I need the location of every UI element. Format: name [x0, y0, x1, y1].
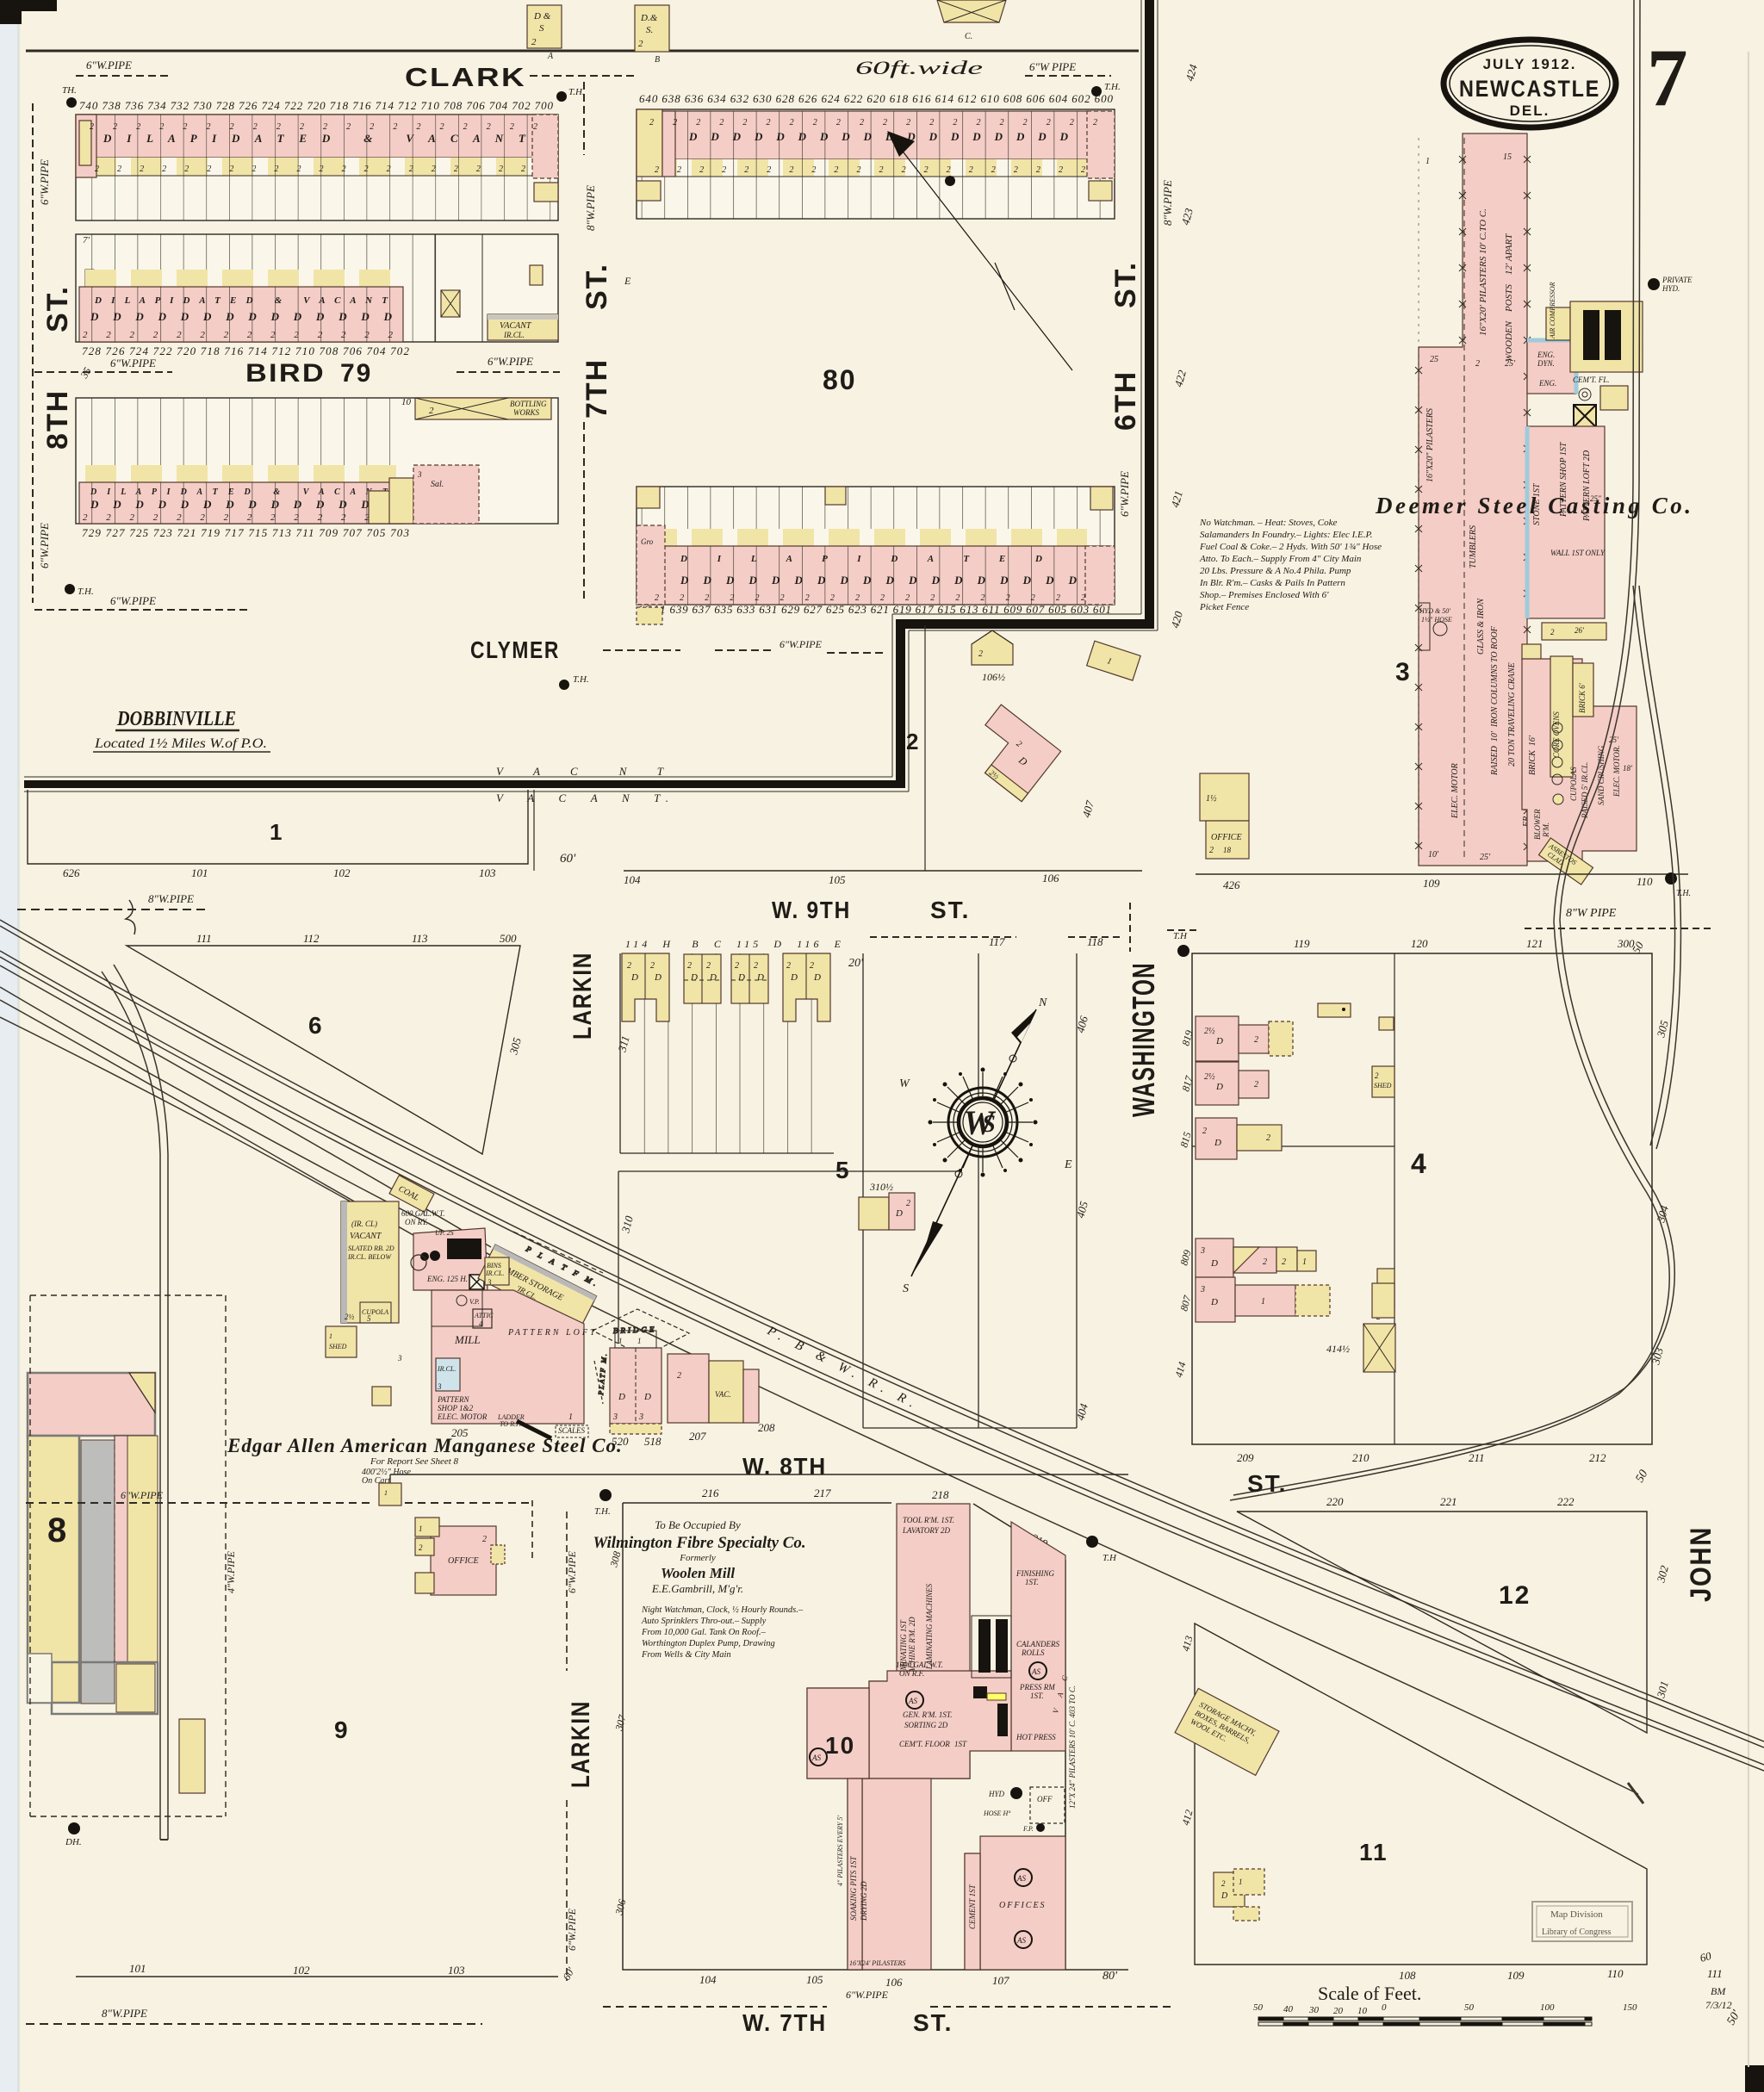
svg-text:ATTIC: ATTIC	[474, 1312, 494, 1319]
svg-text:S.: S.	[646, 25, 653, 35]
svg-text:IR.CL. BELOW: IR.CL. BELOW	[347, 1253, 392, 1261]
svg-text:2: 2	[677, 1371, 681, 1381]
svg-text:MILL: MILL	[454, 1333, 481, 1346]
svg-text:E: E	[624, 275, 631, 287]
svg-text:BINS: BINS	[487, 1262, 501, 1269]
svg-text:2: 2	[419, 1543, 423, 1552]
svg-text:25: 25	[1430, 355, 1438, 364]
svg-text:Night Watchman, Clock, ½ Hourl: Night Watchman, Clock, ½ Hourly Rounds.–	[641, 1605, 804, 1615]
svg-text:1ST.: 1ST.	[1025, 1578, 1039, 1586]
svg-text:VAC.: VAC.	[715, 1390, 731, 1399]
svg-text:VACANT: VACANT	[500, 321, 532, 331]
svg-text:IR.CL.: IR.CL.	[485, 1269, 504, 1277]
svg-text:D: D	[813, 972, 821, 983]
svg-text:106: 106	[1042, 872, 1059, 885]
svg-text:DYN.: DYN.	[1537, 359, 1555, 368]
svg-text:102: 102	[333, 866, 351, 879]
svg-text:6"W.PIPE: 6"W.PIPE	[86, 59, 132, 71]
svg-text:106: 106	[885, 1976, 903, 1989]
svg-text:6"W.PIPE: 6"W.PIPE	[121, 1489, 164, 1501]
svg-text:V.P.: V.P.	[469, 1298, 480, 1306]
svg-text:120: 120	[1411, 937, 1428, 950]
svg-text:3: 3	[1200, 1246, 1205, 1256]
svg-text:60': 60'	[560, 852, 576, 866]
svg-text:2½: 2½	[1204, 1072, 1215, 1082]
svg-text:ST.: ST.	[581, 263, 613, 310]
svg-text:VACANT: VACANT	[350, 1232, 382, 1241]
svg-text:6"W.PIPE: 6"W.PIPE	[566, 1550, 578, 1593]
svg-text:108: 108	[1399, 1969, 1416, 1982]
svg-text:Located 1½ Miles W.of P.O.: Located 1½ Miles W.of P.O.	[94, 736, 267, 751]
svg-text:30: 30	[1308, 2005, 1320, 2015]
svg-text:From 10,000 Gal. Tank On Roof.: From 10,000 Gal. Tank On Roof.–	[641, 1628, 767, 1637]
svg-text:ST.: ST.	[930, 897, 970, 923]
svg-text:ENG.: ENG.	[1537, 351, 1555, 359]
svg-text:121: 121	[1526, 937, 1543, 950]
svg-text:W. 8TH: W. 8TH	[742, 1453, 827, 1480]
svg-text:W. 9TH: W. 9TH	[772, 897, 851, 923]
svg-text:25': 25'	[1505, 359, 1516, 369]
svg-text:6"W.PIPE: 6"W.PIPE	[110, 357, 156, 369]
svg-text:Salamanders In Foundry.– Light: Salamanders In Foundry.– Lights: Elec I.…	[1200, 530, 1373, 540]
svg-text:8"W PIPE: 8"W PIPE	[1566, 907, 1617, 920]
svg-text:3: 3	[487, 1278, 492, 1287]
svg-text:2: 2	[1209, 846, 1214, 855]
svg-text:20 Lbs. Pressure & A No.4 Phil: 20 Lbs. Pressure & A No.4 Phila. Pump	[1200, 566, 1351, 576]
svg-text:2: 2	[1550, 628, 1555, 636]
svg-text:F.P.: F.P.	[1022, 1825, 1034, 1833]
svg-text:JULY 1912.: JULY 1912.	[1483, 56, 1577, 72]
svg-text:ELEC. MOTOR: ELEC. MOTOR	[1450, 763, 1460, 819]
svg-text:Worthington Duplex Pump, Drawi: Worthington Duplex Pump, Drawing	[642, 1639, 775, 1648]
svg-text:20: 20	[1333, 2006, 1344, 2016]
svg-text:104: 104	[699, 1973, 717, 1986]
svg-text:AS: AS	[1016, 1936, 1026, 1945]
svg-text:211: 211	[1469, 1451, 1485, 1464]
svg-text:OFF: OFF	[1037, 1795, 1053, 1803]
svg-text:D: D	[690, 972, 698, 983]
svg-text:6"W.PIPE: 6"W.PIPE	[38, 523, 51, 568]
svg-text:ENG.: ENG.	[1538, 379, 1556, 388]
svg-text:SHOP 1&2: SHOP 1&2	[438, 1404, 474, 1412]
svg-text:150: 150	[1623, 2002, 1637, 2013]
svg-text:T.H.: T.H.	[594, 1506, 611, 1517]
svg-text:626: 626	[63, 866, 80, 879]
svg-text:Edgar Allen American Manganese: Edgar Allen American Manganese Steel Co.	[227, 1435, 623, 1456]
svg-text:8"W.PIPE: 8"W.PIPE	[584, 185, 597, 231]
svg-text:1: 1	[419, 1524, 423, 1533]
svg-text:6TH: 6TH	[1109, 370, 1142, 431]
svg-text:10': 10'	[1428, 850, 1439, 860]
svg-text:101: 101	[191, 866, 208, 879]
svg-text:2: 2	[531, 37, 537, 47]
svg-text:210: 210	[1352, 1451, 1370, 1464]
svg-text:CEMENT 1ST: CEMENT 1ST	[968, 1884, 977, 1929]
svg-text:2: 2	[1221, 1879, 1226, 1888]
svg-text:2: 2	[706, 961, 711, 971]
svg-text:2: 2	[627, 961, 631, 971]
svg-text:105: 105	[829, 873, 846, 886]
svg-text:Scale of Feet.: Scale of Feet.	[1318, 1983, 1421, 2004]
svg-text:208: 208	[758, 1421, 775, 1434]
svg-text:103: 103	[448, 1964, 465, 1977]
svg-text:CLYMER: CLYMER	[470, 636, 560, 663]
svg-text:218: 218	[932, 1488, 949, 1501]
svg-text:AS: AS	[1016, 1874, 1026, 1883]
svg-text:ST.: ST.	[41, 285, 74, 332]
svg-text:OFFICE: OFFICE	[1211, 833, 1242, 842]
svg-text:2: 2	[1266, 1133, 1270, 1143]
svg-text:15: 15	[1503, 152, 1512, 162]
svg-text:AIR COMPRESSOR: AIR COMPRESSOR	[1549, 282, 1556, 339]
svg-text:ENG. 125 H.: ENG. 125 H.	[426, 1275, 468, 1283]
svg-text:2: 2	[1475, 359, 1480, 369]
svg-text:D: D	[630, 972, 638, 983]
svg-text:2: 2	[786, 961, 791, 971]
svg-text:728 726 724 722 720 718 716 71: 728 726 724 722 720 718 716 714 712 710 …	[82, 345, 410, 357]
svg-text:BRICK 16': BRICK 16'	[1528, 735, 1537, 775]
svg-text:6"W.PIPE: 6"W.PIPE	[780, 638, 823, 650]
svg-text:HOSE H°: HOSE H°	[983, 1810, 1011, 1817]
svg-text:CEM'T. FLOOR: CEM'T. FLOOR	[899, 1740, 950, 1748]
svg-text:DH.: DH.	[65, 1837, 82, 1847]
svg-text:Wilmington Fibre Specialty Co.: Wilmington Fibre Specialty Co.	[593, 1534, 805, 1552]
svg-text:2: 2	[650, 961, 655, 971]
svg-text:BIRD: BIRD	[245, 359, 326, 388]
svg-text:Woolen Mill: Woolen Mill	[661, 1565, 735, 1581]
svg-text:Sal.: Sal.	[431, 480, 444, 489]
svg-text:WOODEN POSTS 12' APART: WOODEN POSTS 12' APART	[1504, 233, 1514, 362]
svg-text:1½" HOSE: 1½" HOSE	[1421, 616, 1452, 624]
svg-text:109: 109	[1507, 1969, 1525, 1982]
svg-text:TH.: TH.	[62, 85, 77, 96]
svg-text:103: 103	[479, 866, 496, 879]
svg-text:222: 222	[1557, 1495, 1575, 1508]
svg-text:111: 111	[196, 932, 212, 945]
svg-text:D: D	[1214, 1138, 1221, 1148]
svg-text:16'X24' PILASTERS: 16'X24' PILASTERS	[849, 1959, 905, 1967]
svg-text:2: 2	[735, 961, 739, 971]
svg-text:414½: 414½	[1326, 1343, 1350, 1355]
svg-text:1GA1 639 637 635 633 631 629 6: 1GA1 639 637 635 633 631 629 627 625 623…	[637, 603, 1111, 616]
svg-text:Formerly: Formerly	[679, 1553, 716, 1563]
svg-text:1½: 1½	[1206, 794, 1217, 804]
svg-text:520: 520	[612, 1435, 629, 1448]
svg-text:PRIVATE: PRIVATE	[1662, 276, 1693, 284]
svg-text:1: 1	[1302, 1257, 1307, 1267]
svg-text:100: 100	[1540, 2002, 1555, 2013]
svg-text:D: D	[618, 1392, 625, 1402]
svg-text:T.H: T.H	[1102, 1553, 1117, 1563]
svg-text:11: 11	[1359, 1839, 1388, 1865]
svg-text:LARKIN: LARKIN	[568, 952, 597, 1040]
svg-text:2: 2	[810, 961, 814, 971]
svg-text:1: 1	[1261, 1297, 1265, 1307]
svg-text:CEM'T. FL.: CEM'T. FL.	[1573, 376, 1610, 384]
svg-text:T.H.: T.H.	[78, 587, 94, 597]
svg-text:WASHINGTON: WASHINGTON	[1126, 962, 1161, 1117]
svg-text:6"W.PIPE: 6"W.PIPE	[566, 1908, 578, 1951]
svg-text:16"X20" PILASTERS: 16"X20" PILASTERS	[1425, 408, 1435, 482]
svg-text:9: 9	[334, 1716, 350, 1743]
svg-text:310½: 310½	[869, 1181, 893, 1193]
svg-text:CUPOLA: CUPOLA	[362, 1308, 388, 1316]
svg-text:2: 2	[1282, 1257, 1286, 1267]
svg-text:CALANDERS: CALANDERS	[1016, 1640, 1060, 1648]
svg-text:PATTERN LOFT: PATTERN LOFT	[507, 1328, 598, 1338]
svg-text:5: 5	[367, 1314, 371, 1323]
svg-text:1ST.: 1ST.	[1030, 1692, 1044, 1700]
svg-text:6"W.PIPE: 6"W.PIPE	[1118, 471, 1131, 517]
svg-text:6: 6	[308, 1012, 324, 1039]
svg-text:20': 20'	[848, 957, 864, 970]
svg-text:Library of Congress: Library of Congress	[1542, 1927, 1612, 1937]
svg-text:DEL.: DEL.	[1510, 102, 1550, 119]
svg-text:S: S	[539, 23, 544, 34]
svg-text:110: 110	[1607, 1967, 1624, 1980]
svg-text:GEN. R'M. 1ST.: GEN. R'M. 1ST.	[903, 1710, 953, 1719]
svg-text:4: 4	[1411, 1148, 1428, 1179]
svg-text:212: 212	[1589, 1451, 1606, 1464]
svg-text:1: 1	[329, 1332, 332, 1340]
svg-text:111: 111	[1707, 1967, 1723, 1980]
svg-text:0: 0	[1382, 2002, 1387, 2013]
svg-text:2: 2	[1375, 1071, 1379, 1080]
svg-text:ELEC. MOTOR: ELEC. MOTOR	[437, 1412, 488, 1421]
svg-text:AS: AS	[908, 1697, 917, 1705]
svg-text:2: 2	[687, 961, 692, 971]
svg-text:IR.CL.: IR.CL.	[503, 331, 525, 339]
svg-text:1000 GAL W.T.: 1000 GAL W.T.	[896, 1661, 943, 1669]
svg-text:109: 109	[1423, 877, 1440, 890]
svg-text:8"W.PIPE: 8"W.PIPE	[1161, 180, 1174, 226]
svg-text:S: S	[982, 1111, 996, 1138]
svg-text:W. 7TH: W. 7TH	[742, 2009, 827, 2036]
svg-text:SLATED RB. 2D: SLATED RB. 2D	[348, 1245, 394, 1252]
svg-text:W: W	[899, 1077, 910, 1090]
svg-text:E.E.Gambrill, M'g'r.: E.E.Gambrill, M'g'r.	[651, 1582, 743, 1595]
svg-text:WALL 1ST ONLY: WALL 1ST ONLY	[1550, 549, 1606, 557]
svg-text:E: E	[1064, 1158, 1072, 1171]
svg-text:HYD: HYD	[988, 1790, 1005, 1798]
svg-text:2½: 2½	[345, 1313, 355, 1321]
svg-text:6"W.PIPE: 6"W.PIPE	[488, 355, 533, 368]
svg-text:IR.CL.: IR.CL.	[437, 1365, 456, 1373]
svg-text:TUMBLERS: TUMBLERS	[1469, 525, 1478, 568]
svg-text:221: 221	[1440, 1495, 1457, 1508]
svg-text:ON RY.: ON RY.	[405, 1218, 428, 1226]
svg-text:600 GAL.W.T.: 600 GAL.W.T.	[401, 1209, 445, 1218]
svg-text:5: 5	[835, 1157, 851, 1183]
svg-text:2: 2	[482, 1535, 487, 1544]
svg-text:20 TON TRAVELING CRANE: 20 TON TRAVELING CRANE	[1507, 662, 1517, 767]
svg-text:3: 3	[638, 1412, 643, 1422]
svg-text:4"W.PIPE: 4"W.PIPE	[225, 1550, 237, 1593]
svg-text:CUPOLAS: CUPOLAS	[1569, 767, 1578, 801]
svg-text:1: 1	[637, 1337, 642, 1345]
svg-text:6"W PIPE: 6"W PIPE	[1029, 60, 1076, 73]
svg-text:26': 26'	[1575, 626, 1585, 635]
svg-text:D: D	[709, 972, 717, 983]
svg-text:7': 7'	[83, 235, 90, 245]
svg-text:80: 80	[823, 364, 857, 395]
svg-text:BLOWER: BLOWER	[1533, 809, 1542, 840]
svg-text:HYD.: HYD.	[1662, 284, 1680, 293]
svg-text:300: 300	[1617, 937, 1635, 950]
svg-text:110: 110	[1637, 875, 1653, 888]
svg-text:Deemer Steel Casting Co.: Deemer Steel Casting Co.	[1375, 493, 1691, 518]
svg-text:119: 119	[1294, 937, 1310, 950]
svg-text:FINISHING: FINISHING	[1016, 1569, 1054, 1578]
svg-text:ELEC. MOTOR.: ELEC. MOTOR.	[1612, 745, 1621, 798]
svg-text:2: 2	[906, 729, 920, 754]
svg-text:3: 3	[1200, 1285, 1205, 1294]
svg-text:C.: C.	[965, 32, 972, 41]
svg-text:1: 1	[1239, 1878, 1243, 1886]
svg-text:518: 518	[644, 1435, 661, 1448]
svg-text:102: 102	[293, 1964, 310, 1977]
svg-text:Fuel Coal & Coke.– 2 Hyds. Wit: Fuel Coal & Coke.– 2 Hyds. With 50' 1¾" …	[1199, 542, 1382, 552]
svg-text:T.H.: T.H.	[1104, 82, 1121, 92]
svg-text:4: 4	[479, 1319, 483, 1328]
svg-text:Atto. To Each.– Supply From 4": Atto. To Each.– Supply From 4" City Main	[1199, 554, 1362, 564]
svg-text:107: 107	[992, 1974, 1009, 1987]
svg-text:For Report See Sheet 8: For Report See Sheet 8	[370, 1456, 459, 1467]
svg-text:N: N	[1038, 996, 1047, 1009]
svg-text:D: D	[790, 972, 798, 983]
svg-text:50: 50	[1464, 2002, 1475, 2013]
svg-text:T.H.: T.H.	[573, 674, 589, 685]
svg-text:640 638 636 634 632 630 628 62: 640 638 636 634 632 630 628 626 624 622 …	[639, 92, 1114, 105]
svg-text:112: 112	[303, 932, 320, 945]
svg-text:4" PILASTERS EVERY 5': 4" PILASTERS EVERY 5'	[836, 1816, 844, 1886]
svg-text:3: 3	[417, 470, 422, 479]
svg-text:A: A	[547, 52, 554, 61]
svg-text:D: D	[1221, 1891, 1228, 1901]
svg-text:2½: 2½	[1204, 1027, 1215, 1036]
svg-text:CLARK: CLARK	[405, 62, 526, 92]
svg-text:D: D	[895, 1208, 903, 1219]
svg-text:From Wells & City Main: From Wells & City Main	[641, 1650, 731, 1660]
svg-text:D: D	[1215, 1036, 1223, 1046]
svg-text:106½: 106½	[982, 671, 1005, 683]
svg-text:10: 10	[825, 1732, 855, 1759]
svg-text:Shop.– Premises Enclosed With: Shop.– Premises Enclosed With 6'	[1200, 590, 1329, 600]
svg-text:40: 40	[1283, 2004, 1294, 2014]
svg-text:3: 3	[437, 1382, 442, 1391]
svg-text:1: 1	[1425, 157, 1430, 166]
svg-text:7TH: 7TH	[581, 358, 613, 419]
svg-text:207: 207	[689, 1430, 706, 1443]
svg-text:2: 2	[1202, 1127, 1207, 1136]
svg-text:Map Division: Map Division	[1550, 1909, 1603, 1920]
svg-text:12"X 24" PILASTERS 10' C. 403: 12"X 24" PILASTERS 10' C. 403 TO C.	[1068, 1685, 1077, 1809]
svg-text:BOTTLING: BOTTLING	[510, 400, 547, 408]
svg-text:1: 1	[618, 1337, 623, 1345]
svg-text:220: 220	[1326, 1495, 1344, 1508]
svg-text:426: 426	[1223, 878, 1240, 891]
svg-text:500: 500	[500, 932, 517, 945]
svg-text:10: 10	[1357, 2006, 1368, 2016]
svg-text:ST.: ST.	[1109, 261, 1142, 308]
svg-text:12: 12	[1499, 1581, 1531, 1610]
svg-text:D: D	[1210, 1297, 1218, 1307]
svg-text:16"X20' PILASTERS 10' C.TO C.: 16"X20' PILASTERS 10' C.TO C.	[1478, 208, 1488, 336]
svg-text:CORE OVENS: CORE OVENS	[1552, 711, 1561, 758]
svg-text:2: 2	[1254, 1080, 1258, 1089]
svg-text:104: 104	[624, 873, 641, 886]
svg-text:10: 10	[401, 397, 412, 407]
svg-text:In Blr. R'm.– Casks & Pails In: In Blr. R'm.– Casks & Pails In Pattern	[1199, 578, 1345, 588]
svg-text:1: 1	[568, 1412, 573, 1422]
svg-text:50: 50	[1253, 2002, 1264, 2013]
svg-text:Picket Fence: Picket Fence	[1199, 602, 1249, 612]
svg-text:PATTERN: PATTERN	[437, 1395, 470, 1404]
svg-text:2: 2	[906, 1199, 910, 1208]
svg-text:Gro: Gro	[641, 537, 654, 546]
svg-text:217: 217	[814, 1487, 831, 1499]
svg-text:2: 2	[1254, 1035, 1258, 1045]
svg-text:DRYING 2D: DRYING 2D	[860, 1881, 868, 1921]
svg-text:OFFICE: OFFICE	[448, 1556, 479, 1566]
svg-text:3: 3	[397, 1354, 402, 1363]
svg-text:ROLLS: ROLLS	[1021, 1648, 1045, 1657]
svg-text:BM: BM	[1711, 1985, 1726, 1997]
svg-text:ON R.F.: ON R.F.	[899, 1669, 924, 1678]
svg-text:18: 18	[1223, 846, 1232, 854]
svg-text:OFFICES: OFFICES	[999, 1901, 1047, 1910]
svg-text:D: D	[654, 972, 661, 983]
svg-text:WORKS: WORKS	[513, 408, 539, 417]
svg-text:2: 2	[638, 39, 643, 49]
svg-text:79: 79	[340, 359, 372, 388]
svg-text:RAISED 10' IRON COLUMNS TO R: RAISED 10' IRON COLUMNS TO ROOF	[1490, 625, 1500, 776]
svg-text:216: 216	[702, 1487, 719, 1499]
svg-text:25': 25'	[1480, 853, 1491, 862]
svg-text:D.&: D.&	[640, 13, 658, 23]
svg-text:8TH: 8TH	[41, 389, 74, 450]
svg-text:6"W.PIPE: 6"W.PIPE	[38, 159, 51, 205]
svg-text:To Be Occupied By: To Be Occupied By	[655, 1518, 741, 1531]
svg-text:LAVATORY 2D: LAVATORY 2D	[902, 1526, 950, 1535]
svg-text:SHED: SHED	[329, 1343, 347, 1350]
svg-text:NEWCASTLE: NEWCASTLE	[1459, 76, 1600, 102]
svg-text:S: S	[903, 1282, 909, 1295]
svg-text:PRESS RM: PRESS RM	[1019, 1683, 1055, 1692]
svg-text:UP. 2S: UP. 2S	[435, 1229, 454, 1237]
svg-text:2: 2	[754, 961, 758, 971]
svg-text:8"W.PIPE: 8"W.PIPE	[148, 892, 194, 905]
svg-text:D: D	[643, 1392, 651, 1402]
svg-text:TOOL R'M. 1ST.: TOOL R'M. 1ST.	[903, 1516, 954, 1524]
svg-text:1: 1	[384, 1489, 388, 1497]
svg-text:25': 25'	[1609, 736, 1619, 744]
svg-text:18': 18'	[1623, 764, 1633, 773]
svg-text:BRICK 6': BRICK 6'	[1578, 682, 1587, 713]
svg-text:D &: D &	[533, 11, 551, 22]
svg-text:118: 118	[1087, 935, 1103, 948]
svg-text:101: 101	[129, 1962, 146, 1975]
svg-text:2: 2	[978, 649, 983, 659]
svg-text:SORTING 2D: SORTING 2D	[904, 1721, 948, 1729]
svg-text:729 727 725 723 721 719 717 71: 729 727 725 723 721 719 717 715 713 711 …	[82, 526, 410, 539]
svg-text:1ST: 1ST	[954, 1740, 967, 1748]
svg-text:GLASS & IRON: GLASS & IRON	[1476, 598, 1486, 655]
svg-text:3: 3	[612, 1412, 618, 1422]
svg-text:8"W.PIPE: 8"W.PIPE	[102, 2007, 147, 2020]
svg-text:2: 2	[429, 406, 434, 416]
svg-text:D: D	[1210, 1258, 1218, 1269]
